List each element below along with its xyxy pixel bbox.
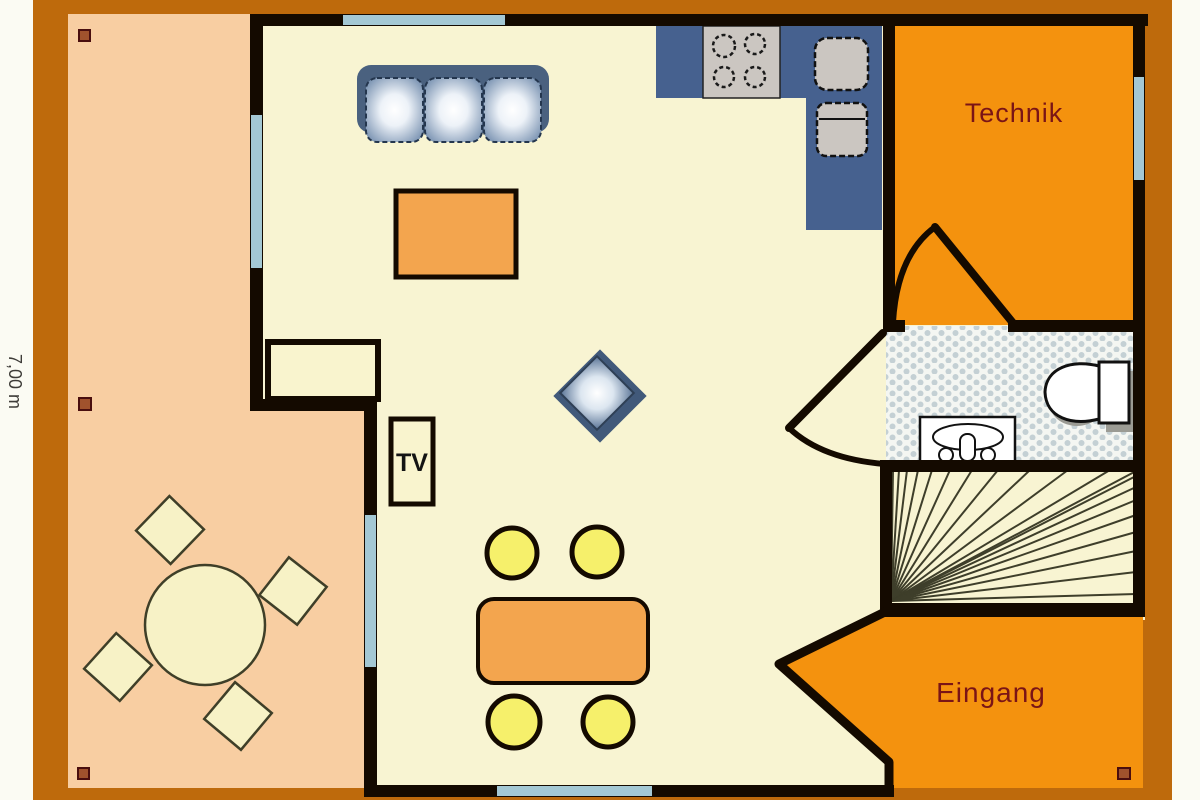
page-margin-right	[1172, 0, 1200, 800]
marker-top-left	[79, 30, 90, 41]
window-left-lower	[365, 515, 376, 667]
dining-table-icon	[478, 599, 648, 683]
wall-technik-bottom	[1008, 320, 1145, 332]
stove-icon	[703, 26, 780, 98]
dining-chair-icon	[487, 528, 537, 578]
window-left-upper	[251, 115, 262, 268]
wall-notch	[250, 399, 377, 411]
washbasin-icon	[920, 417, 1015, 465]
wall-stairs-bottom	[880, 603, 1142, 617]
dining-chair-icon	[583, 697, 633, 747]
staircase-icon	[886, 466, 1138, 606]
window-top	[343, 15, 505, 25]
dimension-label: 7,00 m	[5, 354, 25, 409]
marker-bottom-left	[78, 768, 89, 779]
technik-room-area	[886, 20, 1136, 325]
technik-room-label: Technik	[965, 98, 1064, 128]
wall-technik-left	[883, 14, 895, 332]
window-bottom	[497, 786, 652, 796]
coffee-table-icon	[396, 191, 516, 277]
floor-plan-canvas: Technik Eingang TV 7,00 m	[0, 0, 1200, 800]
wall-stairs-left	[880, 460, 892, 617]
window-technik	[1134, 77, 1144, 180]
marker-bottom-right	[1118, 768, 1130, 779]
marker-mid-left	[79, 398, 91, 410]
entrance-room-label: Eingang	[936, 677, 1046, 708]
wall-bath-bottom	[880, 460, 1138, 472]
tv-label: TV	[396, 449, 428, 477]
dining-chair-icon	[572, 527, 622, 577]
floor-plan: Technik Eingang TV 7,00 m	[0, 0, 1200, 800]
sofa-icon	[357, 65, 549, 142]
sideboard-icon	[268, 342, 378, 399]
dining-chair-icon	[488, 696, 540, 748]
terrace-table-icon	[145, 565, 265, 685]
